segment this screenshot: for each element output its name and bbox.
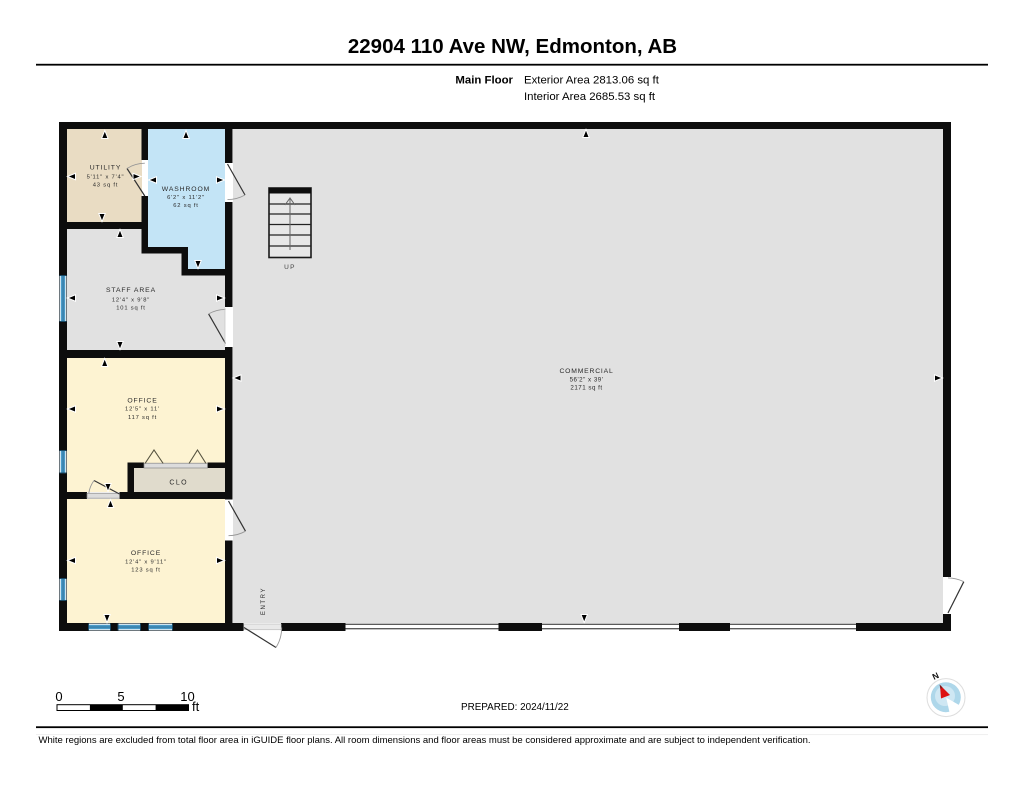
svg-text:Interior Area 2685.53 sq ft: Interior Area 2685.53 sq ft bbox=[524, 91, 656, 103]
svg-text:62 sq ft: 62 sq ft bbox=[173, 203, 198, 209]
svg-text:22904 110 Ave NW, Edmonton, AB: 22904 110 Ave NW, Edmonton, AB bbox=[348, 35, 677, 58]
svg-text:UTILITY: UTILITY bbox=[90, 165, 122, 172]
svg-text:CLO: CLO bbox=[169, 479, 188, 486]
svg-text:Main Floor: Main Floor bbox=[455, 75, 513, 87]
svg-text:2171 sq ft: 2171 sq ft bbox=[570, 384, 602, 391]
svg-text:WASHROOM: WASHROOM bbox=[162, 186, 210, 193]
svg-text:56'2" x 39': 56'2" x 39' bbox=[570, 376, 604, 383]
svg-text:43 sq ft: 43 sq ft bbox=[93, 182, 118, 188]
svg-text:Exterior Area 2813.06 sq ft: Exterior Area 2813.06 sq ft bbox=[524, 75, 660, 87]
svg-text:0: 0 bbox=[55, 689, 62, 704]
svg-text:12'4" x 9'11": 12'4" x 9'11" bbox=[125, 559, 167, 565]
svg-text:123 sq ft: 123 sq ft bbox=[131, 568, 160, 574]
svg-text:12'5" x 11': 12'5" x 11' bbox=[125, 407, 160, 413]
svg-text:6'2" x 11'2": 6'2" x 11'2" bbox=[167, 195, 205, 201]
svg-text:5'11" x 7'4": 5'11" x 7'4" bbox=[87, 174, 125, 180]
svg-text:COMMERCIAL: COMMERCIAL bbox=[559, 368, 613, 375]
svg-text:UP: UP bbox=[284, 264, 296, 271]
svg-text:PREPARED: 2024/11/22: PREPARED: 2024/11/22 bbox=[461, 702, 569, 713]
svg-text:White regions are excluded fro: White regions are excluded from total fl… bbox=[39, 735, 811, 746]
svg-text:OFFICE: OFFICE bbox=[127, 398, 157, 405]
svg-text:5: 5 bbox=[117, 689, 124, 704]
svg-text:101 sq ft: 101 sq ft bbox=[116, 306, 145, 312]
svg-text:ENTRY: ENTRY bbox=[261, 587, 267, 615]
svg-text:12'4" x 9'8": 12'4" x 9'8" bbox=[112, 297, 150, 303]
svg-text:ft: ft bbox=[192, 699, 200, 714]
svg-text:117 sq ft: 117 sq ft bbox=[128, 415, 157, 421]
svg-text:STAFF AREA: STAFF AREA bbox=[106, 287, 156, 294]
svg-text:OFFICE: OFFICE bbox=[131, 550, 161, 557]
